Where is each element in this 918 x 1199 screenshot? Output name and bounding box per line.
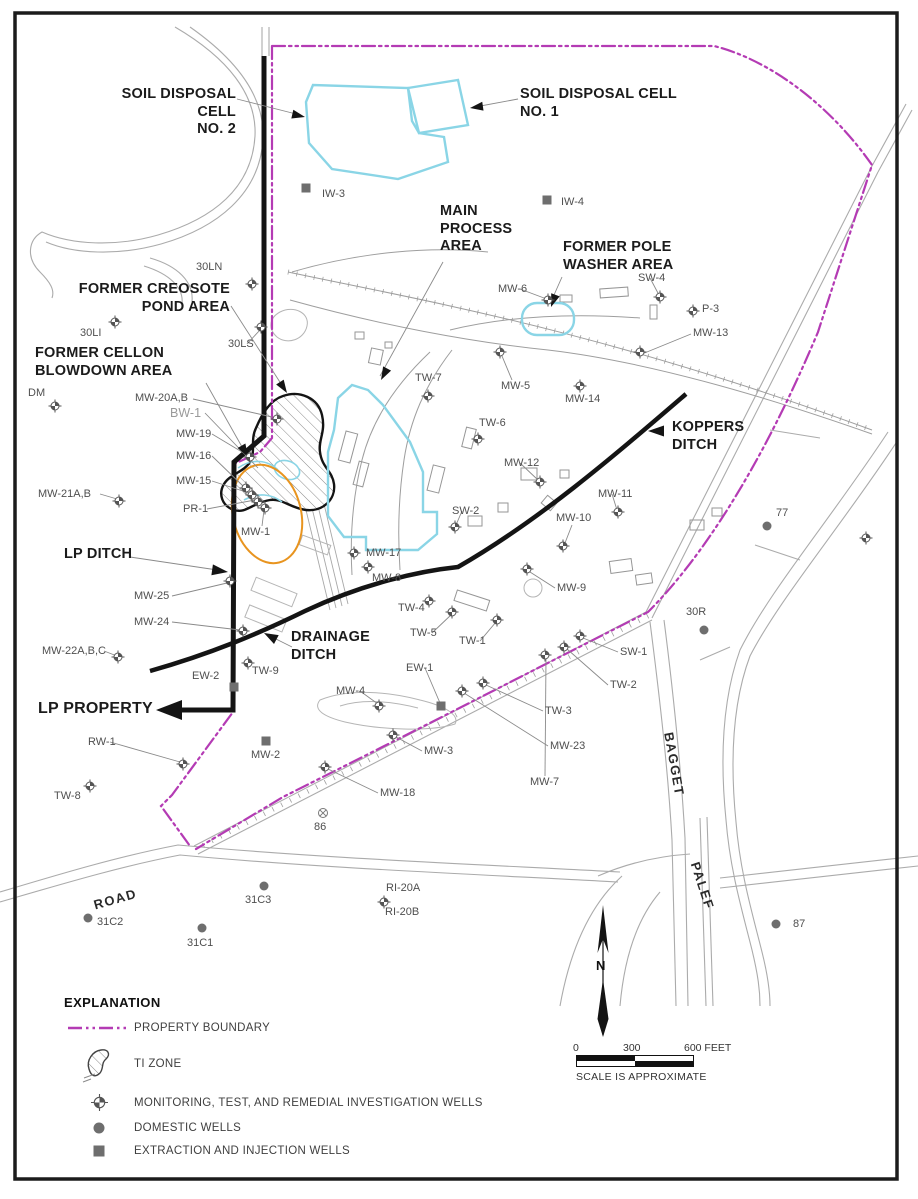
scale-tick-300: 300: [623, 1042, 641, 1054]
extraction-well-icon: [436, 701, 446, 711]
monitoring-well-icon: [477, 677, 490, 690]
extraction-well-icon: [542, 195, 552, 205]
well-label-bw-1: BW-1: [170, 407, 201, 420]
monitoring-well-icon: [494, 346, 507, 359]
well-label-77: 77: [776, 508, 788, 519]
well-label-mw-22a-b-c: MW-22A,B,C: [42, 646, 106, 657]
monitoring-well-icon: [224, 575, 237, 588]
well-label-ri-20a: RI-20A: [386, 883, 420, 894]
monitoring-well-icon: [113, 495, 126, 508]
monitoring-well-icon: [348, 547, 361, 560]
well-label-mw-25: MW-25: [134, 591, 169, 602]
well-label-mw-17: MW-17: [366, 548, 401, 559]
monitoring-well-icon: [244, 451, 257, 464]
extraction-well-icon: [301, 183, 311, 193]
well-label-sw-4: SW-4: [638, 273, 665, 284]
monitoring-well-icon: [521, 563, 534, 576]
well-label-tw-9: TW-9: [252, 666, 279, 677]
well-label-86: 86: [314, 822, 326, 833]
domestic-well-icon: [83, 913, 93, 923]
well-label-ri-20b: RI-20B: [385, 907, 419, 918]
well-label-tw-6: TW-6: [479, 418, 506, 429]
monitoring-well-icon: [271, 413, 284, 426]
extraction-well-icon: [229, 682, 239, 692]
monitoring-well-icon: [449, 521, 462, 534]
well-label-mw-20a-b: MW-20A,B: [135, 393, 188, 404]
well-label-ew-1: EW-1: [406, 663, 433, 674]
legend-item-monitoring-wells: MONITORING, TEST, AND REMEDIAL INVESTIGA…: [64, 1094, 534, 1111]
monitoring-well-icon: [542, 294, 555, 307]
well-label-30ls: 30LS: [228, 339, 254, 350]
monitoring-well-icon: [109, 316, 122, 329]
well-label-mw-6: MW-6: [498, 284, 527, 295]
monitoring-well-icon: [373, 700, 386, 713]
well-label-31c3: 31C3: [245, 895, 271, 906]
well-label-mw-11: MW-11: [598, 489, 632, 500]
domestic-well-icon: [771, 919, 781, 929]
monitoring-well-icon: [612, 506, 625, 519]
monitoring-well-icon: [319, 761, 332, 774]
well-label-tw-2: TW-2: [610, 680, 637, 691]
well-label-mw-1: MW-1: [241, 527, 270, 538]
ti-zone-icon: [64, 1045, 134, 1083]
legend-title: EXPLANATION: [64, 995, 534, 1010]
lp-ditch-line: [166, 56, 264, 710]
lp-property-arrow: [156, 700, 182, 720]
scale-tick-0: 0: [573, 1042, 579, 1054]
drainage-ditch-label: DRAINAGE DITCH: [291, 629, 370, 664]
scale-tick-600: 600 FEET: [684, 1042, 731, 1054]
scale-bar-graphic: [576, 1055, 694, 1067]
legend: EXPLANATION PROPERTY BOUNDARY TI ZONE: [64, 995, 534, 1168]
well-label-dm: DM: [28, 388, 45, 399]
well-label-mw-12: MW-12: [504, 458, 539, 469]
well-label-31c1: 31C1: [187, 938, 213, 949]
well-label-mw-10: MW-10: [556, 513, 591, 524]
well-label-sw-1: SW-1: [620, 647, 647, 658]
legend-item-ti-zone: TI ZONE: [64, 1045, 534, 1083]
monitoring-well-icon: [84, 780, 97, 793]
monitoring-well-icon: [64, 1094, 134, 1111]
monitoring-well-icon: [687, 305, 700, 318]
well-label-mw-23: MW-23: [550, 741, 585, 752]
monitoring-well-icon: [446, 606, 459, 619]
well-label-tw-8: TW-8: [54, 791, 81, 802]
well-label-tw-3: TW-3: [545, 706, 572, 717]
monitoring-well-icon: [387, 729, 400, 742]
well-label-mw-21a-b: MW-21A,B: [38, 489, 91, 500]
well-label-mw-19: MW-19: [176, 429, 211, 440]
domestic-well-icon: [259, 881, 269, 891]
well-label-mw-14: MW-14: [565, 394, 600, 405]
well-label-tw-5: TW-5: [410, 628, 437, 639]
well-label-iw-3: IW-3: [322, 189, 345, 200]
pole-washer-outline: [522, 303, 574, 335]
railroad-tracks: [196, 250, 872, 849]
monitoring-well-icon: [860, 532, 873, 545]
domestic-well-icon: [197, 923, 207, 933]
leader-lines: [100, 99, 691, 793]
monitoring-well-icon: [177, 758, 190, 771]
well-label-ew-2: EW-2: [192, 671, 219, 682]
former-cellon-blowdown-area-label: FORMER CELLON BLOWDOWN AREA: [35, 345, 172, 380]
domestic-well-icon: [762, 521, 772, 531]
well-label-mw-9: MW-9: [557, 583, 586, 594]
well-label-rw-1: RW-1: [88, 737, 116, 748]
scale-ticks: 0 300 600 FEET: [576, 1042, 736, 1055]
well-label-tw-4: TW-4: [398, 603, 425, 614]
abandoned-well-icon: [318, 808, 329, 819]
koppers-ditch-label: KOPPERS DITCH: [672, 419, 744, 454]
monitoring-well-icon: [574, 380, 587, 393]
well-label-mw-24: MW-24: [134, 617, 169, 628]
monitoring-well-icon: [49, 400, 62, 413]
well-label-mw-15: MW-15: [176, 476, 211, 487]
well-label-mw-8: MW-8: [372, 573, 401, 584]
soil-cell-1-outline: [408, 80, 468, 133]
ponds: [245, 309, 542, 729]
monitoring-well-icon: [259, 502, 272, 515]
former-creosote-pond-area-label: FORMER CREOSOTE POND AREA: [55, 281, 230, 316]
well-label-mw-13: MW-13: [693, 328, 728, 339]
extraction-well-icon: [64, 1145, 134, 1157]
well-label-p-3: P-3: [702, 304, 719, 315]
legend-item-domestic-wells: DOMESTIC WELLS: [64, 1122, 534, 1134]
domestic-well-icon: [64, 1122, 134, 1134]
well-label-tw-1: TW-1: [459, 636, 486, 647]
legend-item-extraction-wells: EXTRACTION AND INJECTION WELLS: [64, 1145, 534, 1157]
lp-property-label: LP PROPERTY: [38, 699, 153, 719]
well-label-iw-4: IW-4: [561, 197, 584, 208]
site-map-page: { "colors": { "property_boundary": "#b43…: [0, 0, 918, 1199]
well-label-mw-16: MW-16: [176, 451, 211, 462]
property-boundary-line-icon: [64, 1025, 134, 1031]
well-label-mw-3: MW-3: [424, 746, 453, 757]
well-label-30ln: 30LN: [196, 262, 222, 273]
scale-bar: 0 300 600 FEET SCALE IS APPROXIMATE: [576, 1042, 736, 1083]
monitoring-well-icon: [539, 649, 552, 662]
well-label-30li: 30LI: [80, 328, 101, 339]
well-label-87: 87: [793, 919, 805, 930]
former-pole-washer-area-label: FORMER POLE WASHER AREA: [563, 239, 673, 274]
well-label-mw-7: MW-7: [530, 777, 559, 788]
well-label-mw-4: MW-4: [336, 686, 365, 697]
monitoring-well-icon: [574, 630, 587, 643]
monitoring-well-icon: [422, 390, 435, 403]
monitoring-well-icon: [654, 291, 667, 304]
well-label-pr-1: PR-1: [183, 504, 208, 515]
domestic-well-icon: [699, 625, 709, 635]
monitoring-well-icon: [472, 433, 485, 446]
extraction-well-icon: [261, 736, 271, 746]
monitoring-well-icon: [246, 278, 259, 291]
monitoring-well-icon: [237, 625, 250, 638]
well-label-31c2: 31C2: [97, 917, 123, 928]
well-label-tw-7: TW-7: [415, 373, 442, 384]
monitoring-well-icon: [112, 651, 125, 664]
well-label-mw-5: MW-5: [501, 381, 530, 392]
lp-ditch-label: LP DITCH: [64, 546, 132, 564]
monitoring-well-icon: [534, 476, 547, 489]
monitoring-well-icon: [634, 346, 647, 359]
soil-disposal-cell-1-label: SOIL DISPOSAL CELL NO. 1: [520, 86, 677, 121]
monitoring-well-icon: [456, 685, 469, 698]
monitoring-well-icon: [255, 321, 268, 334]
monitoring-well-icon: [558, 641, 571, 654]
legend-item-property-boundary: PROPERTY BOUNDARY: [64, 1022, 534, 1034]
monitoring-well-icon: [557, 540, 570, 553]
main-process-area-label: MAIN PROCESS AREA: [440, 203, 512, 256]
monitoring-well-icon: [491, 614, 504, 627]
north-arrow-letter: N: [596, 958, 605, 973]
soil-disposal-cell-2-label: SOIL DISPOSAL CELL NO. 2: [90, 86, 236, 139]
well-label-mw-18: MW-18: [380, 788, 415, 799]
well-label-mw-2: MW-2: [251, 750, 280, 761]
well-label-sw-2: SW-2: [452, 506, 479, 517]
scale-note: SCALE IS APPROXIMATE: [576, 1071, 736, 1083]
well-label-30r: 30R: [686, 607, 706, 618]
